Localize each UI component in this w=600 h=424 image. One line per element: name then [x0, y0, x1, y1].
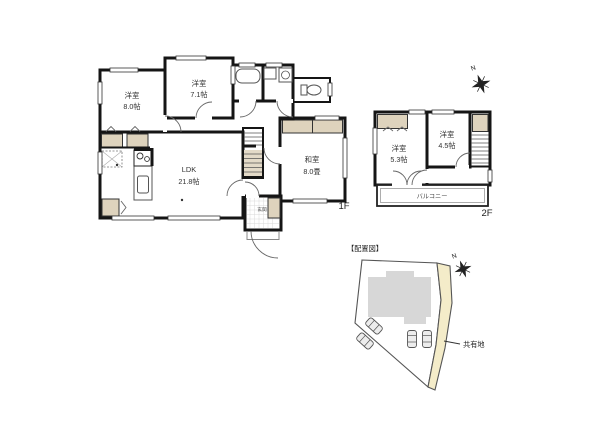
hall-closet-2f	[473, 115, 489, 132]
car-icon	[423, 331, 432, 348]
corridor-wall	[280, 101, 293, 119]
bedroom-d-name: 洋室	[440, 130, 455, 139]
floor2-plan: N 洋室 5.3帖 洋室 4.5帖 バルコニー 2F	[373, 64, 494, 219]
ldk-size: 21.8帖	[178, 177, 199, 186]
ldk-name: LDK	[182, 165, 196, 174]
floor1-plan: 洋室 8.0帖 洋室 7.1帖 LDK 21.8帖 和室 8.0畳 玄関 1F	[98, 56, 350, 258]
bedroom-c-closet	[378, 115, 408, 129]
washing-machine-icon	[279, 68, 292, 82]
ldk-closet	[127, 134, 148, 147]
car-icon	[408, 331, 417, 348]
sink-icon	[138, 176, 149, 193]
compass-2f-label: N	[470, 64, 477, 72]
shoe-cabinet	[268, 198, 280, 218]
bathtub-icon	[236, 69, 260, 83]
shared-area-label: 共有地	[463, 340, 485, 349]
genkan-label: 玄関	[257, 206, 267, 213]
room-bedroom-a	[100, 70, 165, 132]
fridge-space	[102, 151, 122, 167]
building-footprint	[368, 271, 431, 324]
bedroom-a-size: 8.0帖	[123, 102, 140, 111]
bedroom-b-size: 7.1帖	[190, 90, 207, 99]
compass-site-label: N	[451, 252, 458, 260]
stairs-2f	[470, 135, 490, 167]
ldk-closet	[102, 134, 123, 147]
site-plan: 【配置図】 共有地	[347, 244, 485, 390]
washitsu-size: 8.0畳	[303, 167, 320, 176]
room-bedroom-d	[427, 112, 470, 167]
detector-dot	[181, 199, 183, 201]
bedroom-d-size: 4.5帖	[438, 141, 455, 150]
floor-plan-svg: 洋室 8.0帖 洋室 7.1帖 LDK 21.8帖 和室 8.0畳 玄関 1F	[0, 0, 600, 424]
detector-dot	[116, 164, 118, 166]
compass-site-icon	[451, 257, 474, 280]
toilet-icon	[301, 85, 321, 95]
balcony-label: バルコニー	[417, 194, 448, 201]
bedroom-c-size: 5.3帖	[390, 155, 407, 164]
bedroom-a-name: 洋室	[125, 91, 140, 100]
washbasin-icon	[264, 68, 276, 79]
ldk-storage	[102, 199, 119, 216]
compass-2f-icon	[468, 71, 494, 97]
entrance-door-arc	[251, 231, 278, 258]
folding-door-mark	[121, 201, 126, 214]
floor-plan-canvas: 洋室 8.0帖 洋室 7.1帖 LDK 21.8帖 和室 8.0畳 玄関 1F	[0, 0, 600, 424]
floor1-label: 1F	[338, 201, 349, 212]
floor2-label: 2F	[481, 208, 492, 219]
bedroom-c-name: 洋室	[392, 144, 407, 153]
washitsu-name: 和室	[305, 155, 320, 164]
bedroom-b-name: 洋室	[192, 79, 207, 88]
site-plan-title: 【配置図】	[347, 244, 383, 253]
